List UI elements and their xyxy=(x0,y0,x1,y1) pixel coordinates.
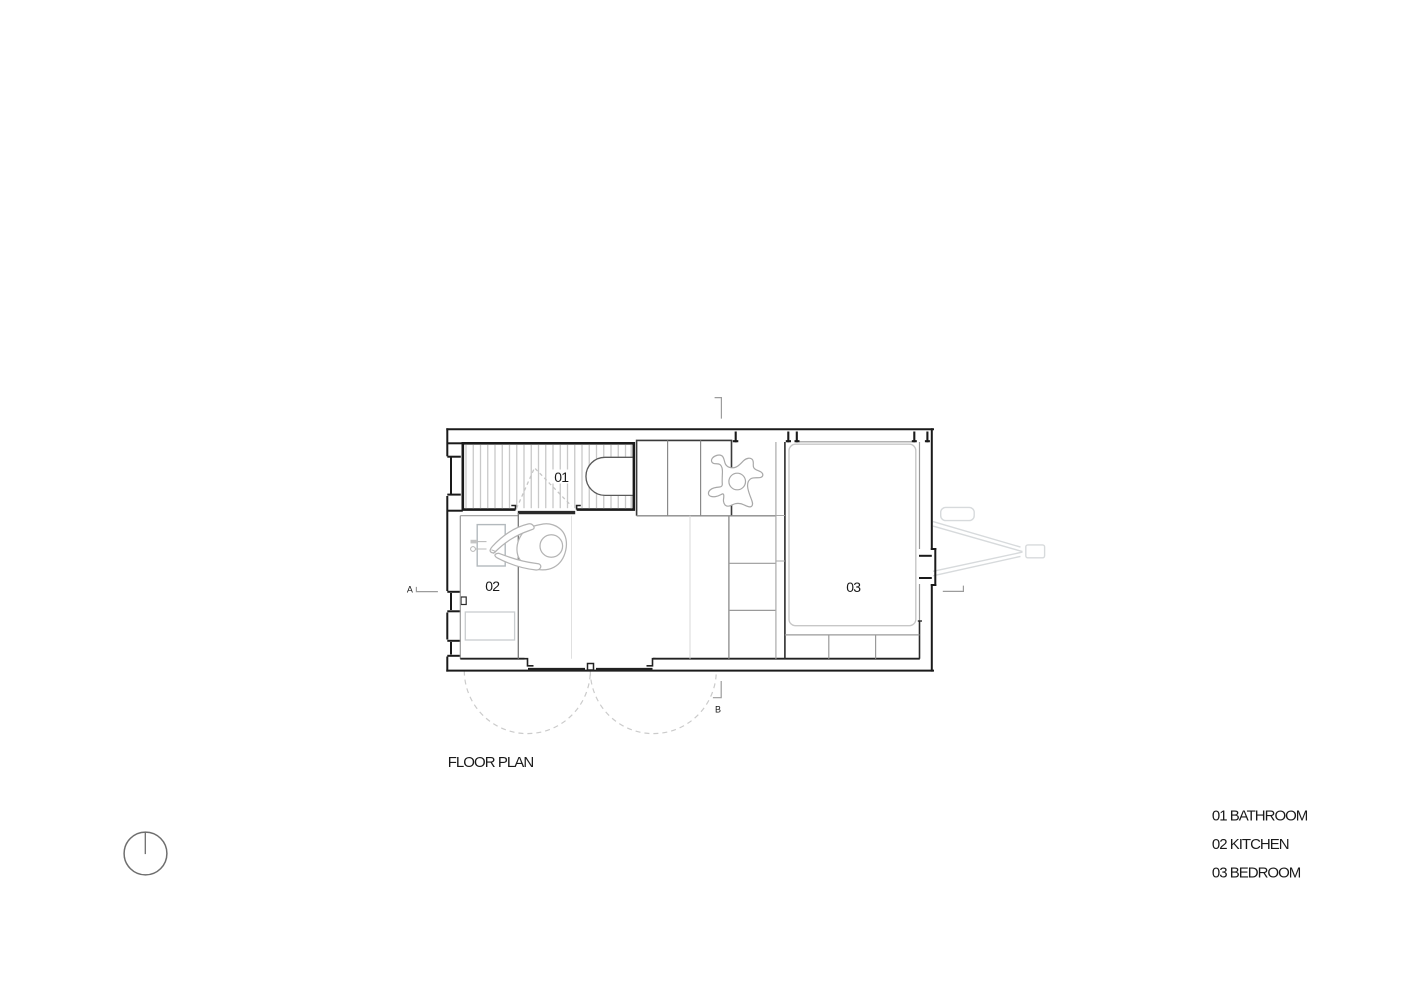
svg-text:03: 03 xyxy=(846,579,861,595)
svg-text:FLOOR PLAN: FLOOR PLAN xyxy=(448,754,534,771)
svg-text:01: 01 xyxy=(554,469,569,485)
svg-text:02 KITCHEN: 02 KITCHEN xyxy=(1212,836,1289,853)
svg-text:01 BATHROOM: 01 BATHROOM xyxy=(1212,807,1308,824)
svg-text:A: A xyxy=(407,584,413,594)
svg-text:B: B xyxy=(715,704,721,714)
svg-text:02: 02 xyxy=(485,578,500,594)
svg-text:03 BEDROOM: 03 BEDROOM xyxy=(1212,864,1301,881)
